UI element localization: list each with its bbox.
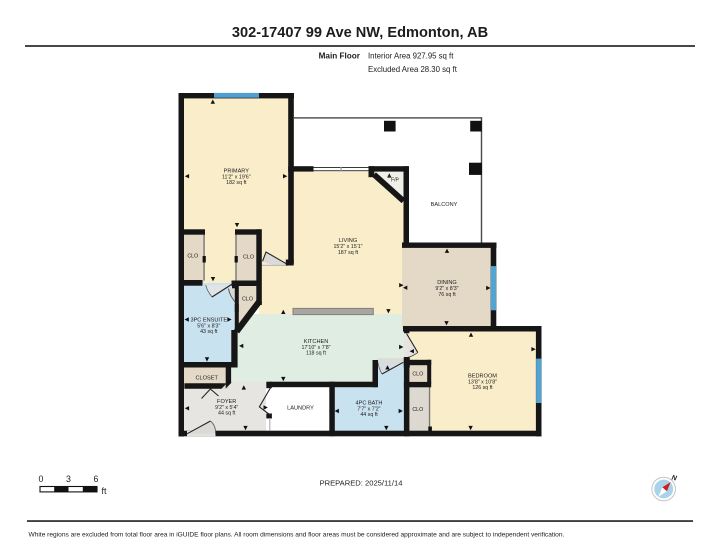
svg-text:182 sq ft: 182 sq ft	[226, 180, 247, 186]
svg-text:F/P: F/P	[391, 177, 399, 183]
svg-text:6: 6	[94, 474, 99, 484]
svg-text:187 sq ft: 187 sq ft	[338, 250, 359, 256]
svg-text:118 sq ft: 118 sq ft	[306, 351, 326, 357]
svg-text:Interior Area 927.95 sq ft: Interior Area 927.95 sq ft	[368, 52, 454, 61]
svg-text:CLO: CLO	[412, 407, 423, 413]
svg-text:44 sq ft: 44 sq ft	[218, 411, 236, 417]
svg-text:43 sq ft: 43 sq ft	[200, 329, 218, 335]
svg-text:3: 3	[66, 474, 71, 484]
svg-text:LAUNDRY: LAUNDRY	[287, 406, 314, 412]
svg-text:76 sq ft: 76 sq ft	[438, 292, 456, 298]
svg-text:126 sq ft: 126 sq ft	[472, 385, 493, 391]
svg-text:Excluded Area 28.30 sq ft: Excluded Area 28.30 sq ft	[368, 65, 458, 74]
svg-text:CLOSET: CLOSET	[196, 376, 219, 382]
svg-text:White regions are excluded fro: White regions are excluded from total fl…	[29, 532, 565, 539]
svg-text:0: 0	[39, 474, 44, 484]
svg-text:Main Floor: Main Floor	[319, 52, 361, 61]
svg-text:PREPARED: 2025/11/14: PREPARED: 2025/11/14	[320, 479, 403, 488]
svg-text:CLO: CLO	[187, 254, 198, 260]
svg-text:BALCONY: BALCONY	[431, 202, 458, 208]
svg-text:302-17407 99 Ave NW, Edmonton,: 302-17407 99 Ave NW, Edmonton, AB	[232, 25, 488, 41]
svg-text:ft: ft	[102, 486, 107, 496]
svg-text:44 sq ft: 44 sq ft	[360, 412, 378, 418]
svg-text:CLO: CLO	[243, 254, 254, 260]
svg-text:CLO: CLO	[412, 372, 423, 378]
svg-text:CLO: CLO	[242, 296, 253, 302]
